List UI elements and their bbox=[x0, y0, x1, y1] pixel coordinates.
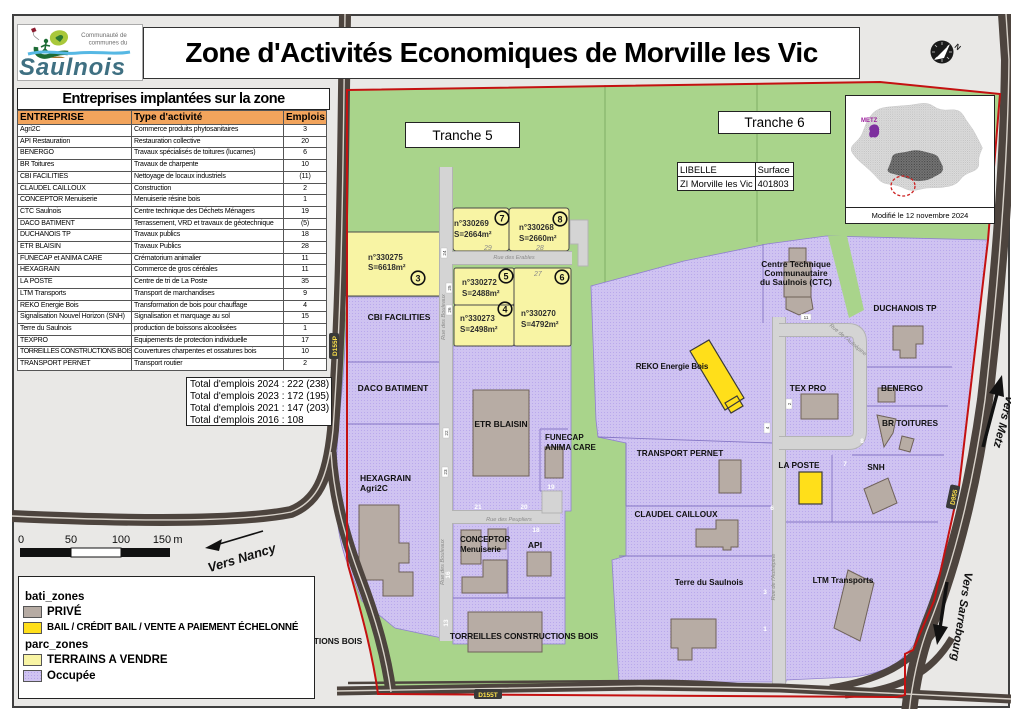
svg-text:50: 50 bbox=[65, 534, 77, 546]
svg-text:1: 1 bbox=[763, 626, 767, 633]
svg-text:6: 6 bbox=[770, 505, 774, 512]
svg-text:25: 25 bbox=[447, 285, 452, 291]
svg-text:TEX PRO: TEX PRO bbox=[790, 383, 827, 393]
svg-text:3: 3 bbox=[415, 274, 420, 284]
svg-text:26: 26 bbox=[447, 307, 452, 313]
svg-text:SNH: SNH bbox=[867, 462, 885, 472]
svg-text:S=2498m²: S=2498m² bbox=[460, 325, 498, 334]
svg-text:22: 22 bbox=[444, 430, 449, 436]
svg-text:D155P: D155P bbox=[332, 335, 339, 356]
svg-text:n°330273: n°330273 bbox=[460, 314, 495, 323]
svg-text:m: m bbox=[173, 534, 182, 546]
svg-text:7: 7 bbox=[843, 461, 847, 468]
svg-text:N: N bbox=[953, 42, 963, 52]
svg-text:100: 100 bbox=[112, 534, 130, 546]
svg-text:7: 7 bbox=[499, 214, 504, 224]
svg-text:BENERGO: BENERGO bbox=[881, 383, 923, 393]
svg-text:Rue des Bouleaux: Rue des Bouleaux bbox=[441, 294, 447, 340]
svg-text:LTM Transports: LTM Transports bbox=[813, 576, 874, 585]
svg-text:Communauté de: Communauté de bbox=[81, 32, 127, 39]
svg-text:TIONS BOIS: TIONS BOIS bbox=[314, 636, 363, 646]
svg-text:CLAUDEL CAILLOUX: CLAUDEL CAILLOUX bbox=[634, 510, 718, 519]
svg-text:n°330269: n°330269 bbox=[454, 219, 489, 228]
svg-text:n°330272: n°330272 bbox=[462, 278, 497, 287]
svg-text:4: 4 bbox=[765, 426, 770, 429]
svg-text:TRANSPORT PERNET: TRANSPORT PERNET bbox=[637, 449, 723, 458]
svg-text:16: 16 bbox=[445, 571, 452, 579]
svg-text:20: 20 bbox=[520, 504, 528, 511]
svg-text:19: 19 bbox=[547, 484, 555, 491]
svg-text:API: API bbox=[528, 540, 542, 550]
svg-text:6: 6 bbox=[559, 273, 564, 283]
svg-text:DACO BATIMENT: DACO BATIMENT bbox=[358, 383, 429, 393]
svg-text:n°330275: n°330275 bbox=[368, 253, 403, 262]
svg-text:S=2488m²: S=2488m² bbox=[462, 289, 500, 298]
svg-text:Rue des Peupliers: Rue des Peupliers bbox=[486, 517, 532, 523]
svg-text:D155T: D155T bbox=[478, 692, 498, 699]
svg-text:Centre TechniqueCommunautaire: Centre TechniqueCommunautairedu Saulnois… bbox=[760, 259, 832, 287]
svg-text:S=4792m²: S=4792m² bbox=[521, 320, 559, 329]
svg-text:REKO Energie Bois: REKO Energie Bois bbox=[636, 362, 709, 371]
svg-text:METZ: METZ bbox=[861, 118, 878, 124]
svg-text:150: 150 bbox=[153, 534, 171, 546]
svg-text:5: 5 bbox=[503, 272, 508, 282]
svg-text:4: 4 bbox=[502, 305, 507, 315]
svg-text:CBI FACILITIES: CBI FACILITIES bbox=[368, 312, 431, 322]
svg-text:23: 23 bbox=[443, 469, 448, 475]
svg-text:LA POSTE: LA POSTE bbox=[778, 460, 820, 470]
svg-text:TORREILLES CONSTRUCTIONS BOIS: TORREILLES CONSTRUCTIONS BOIS bbox=[450, 631, 599, 641]
svg-text:8: 8 bbox=[860, 438, 864, 445]
svg-text:S=6618m²: S=6618m² bbox=[368, 263, 406, 272]
svg-text:BR TOITURES: BR TOITURES bbox=[882, 418, 939, 428]
svg-text:ETR BLAISIN: ETR BLAISIN bbox=[474, 419, 527, 429]
svg-text:3: 3 bbox=[763, 589, 767, 596]
svg-text:S=2664m²: S=2664m² bbox=[454, 230, 492, 239]
svg-text:n°330268: n°330268 bbox=[519, 223, 554, 232]
svg-text:Rue de l'Aulnépine: Rue de l'Aulnépine bbox=[771, 554, 777, 601]
svg-text:8: 8 bbox=[557, 215, 562, 225]
svg-text:18: 18 bbox=[532, 527, 540, 534]
svg-text:2: 2 bbox=[787, 402, 792, 405]
svg-text:28: 28 bbox=[535, 245, 544, 252]
svg-text:27: 27 bbox=[533, 271, 543, 278]
svg-text:S=2660m²: S=2660m² bbox=[519, 234, 557, 243]
svg-text:0: 0 bbox=[18, 534, 24, 546]
svg-text:n°330270: n°330270 bbox=[521, 309, 556, 318]
svg-text:24: 24 bbox=[442, 250, 447, 256]
svg-text:11: 11 bbox=[804, 315, 809, 320]
svg-text:DUCHANOIS TP: DUCHANOIS TP bbox=[873, 303, 937, 313]
svg-text:Saulnois: Saulnois bbox=[19, 54, 125, 80]
svg-text:21: 21 bbox=[474, 504, 482, 511]
svg-text:29: 29 bbox=[483, 245, 492, 252]
svg-text:Terre du Saulnois: Terre du Saulnois bbox=[675, 578, 744, 587]
svg-text:Rue des Erables: Rue des Erables bbox=[493, 255, 535, 261]
svg-text:13: 13 bbox=[443, 619, 450, 627]
svg-text:communes du: communes du bbox=[89, 40, 128, 47]
